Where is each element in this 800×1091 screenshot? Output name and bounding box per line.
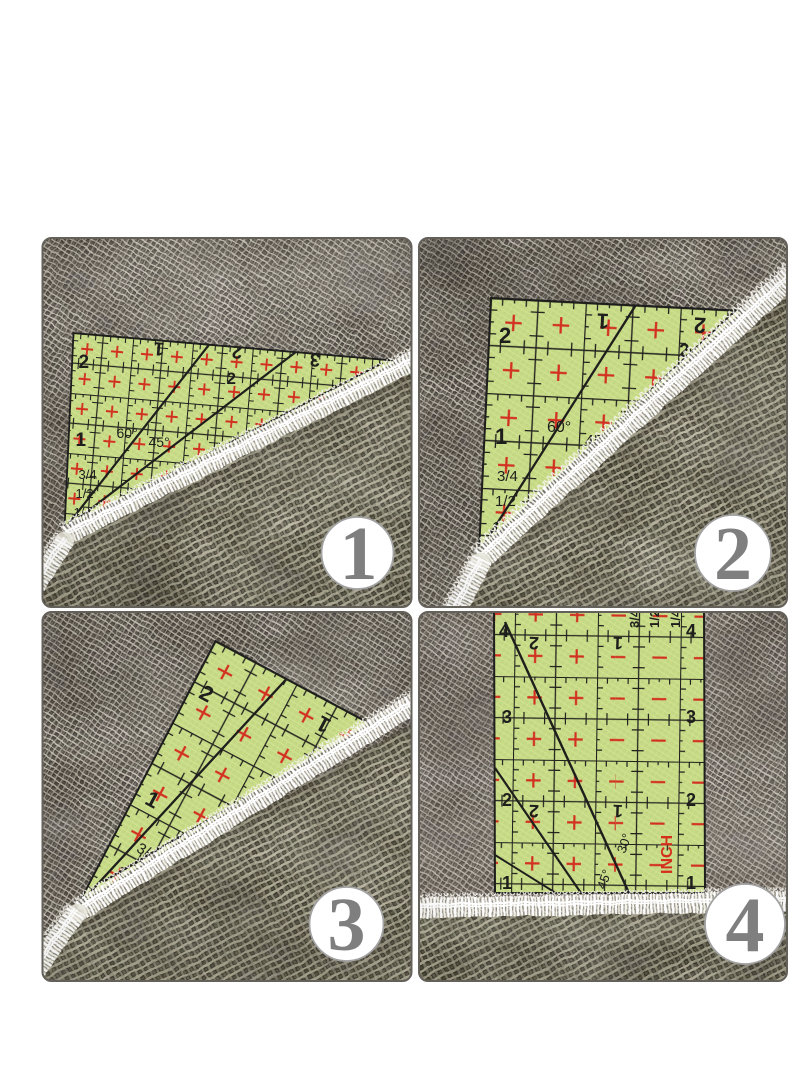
svg-text:2: 2 xyxy=(714,512,752,596)
svg-text:1: 1 xyxy=(340,512,378,596)
svg-text:4: 4 xyxy=(726,881,765,968)
svg-text:3: 3 xyxy=(328,883,366,967)
